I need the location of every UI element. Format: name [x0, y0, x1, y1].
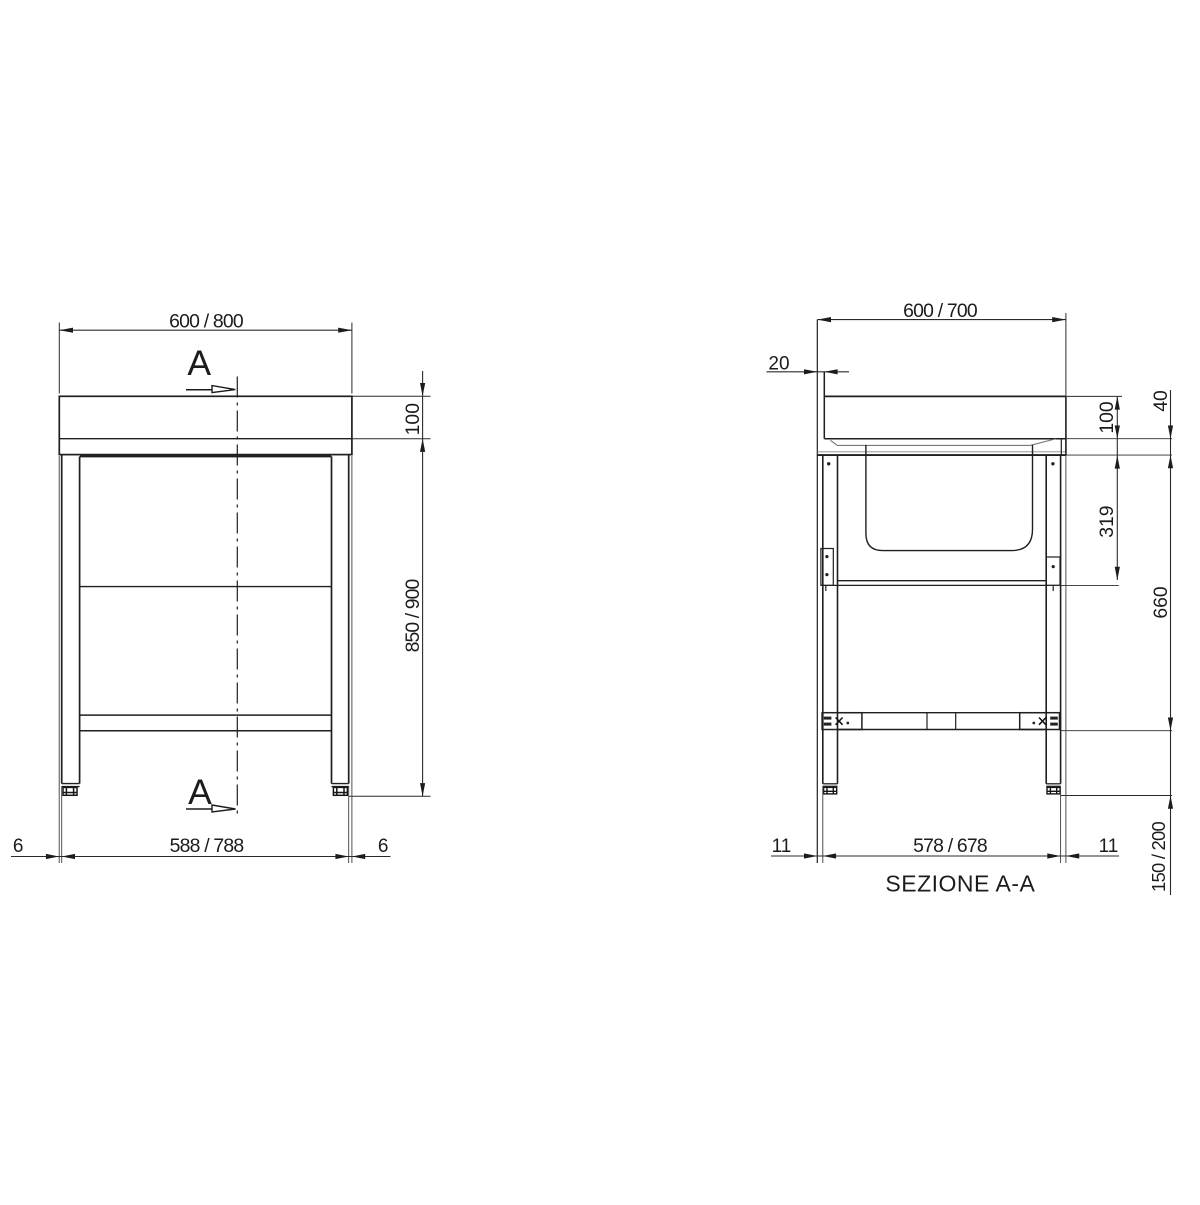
svg-text:11: 11 [1099, 836, 1119, 857]
svg-text:850 / 900: 850 / 900 [402, 579, 424, 653]
svg-text:150 / 200: 150 / 200 [1148, 822, 1169, 892]
svg-text:588 / 788: 588 / 788 [170, 835, 244, 857]
svg-text:319: 319 [1096, 505, 1118, 537]
svg-text:6: 6 [378, 836, 389, 857]
svg-text:A: A [188, 772, 212, 812]
svg-text:100: 100 [402, 403, 424, 436]
svg-text:100: 100 [1096, 401, 1118, 434]
svg-text:40: 40 [1150, 390, 1172, 412]
svg-text:600 / 700: 600 / 700 [903, 300, 978, 322]
svg-text:578 / 678: 578 / 678 [913, 835, 987, 857]
svg-text:600 / 800: 600 / 800 [169, 311, 244, 333]
svg-text:6: 6 [13, 836, 24, 857]
svg-text:20: 20 [768, 354, 789, 375]
svg-text:660: 660 [1150, 586, 1172, 619]
svg-text:SEZIONE A-A: SEZIONE A-A [885, 871, 1035, 897]
svg-text:A: A [187, 343, 211, 383]
svg-text:11: 11 [772, 836, 792, 857]
